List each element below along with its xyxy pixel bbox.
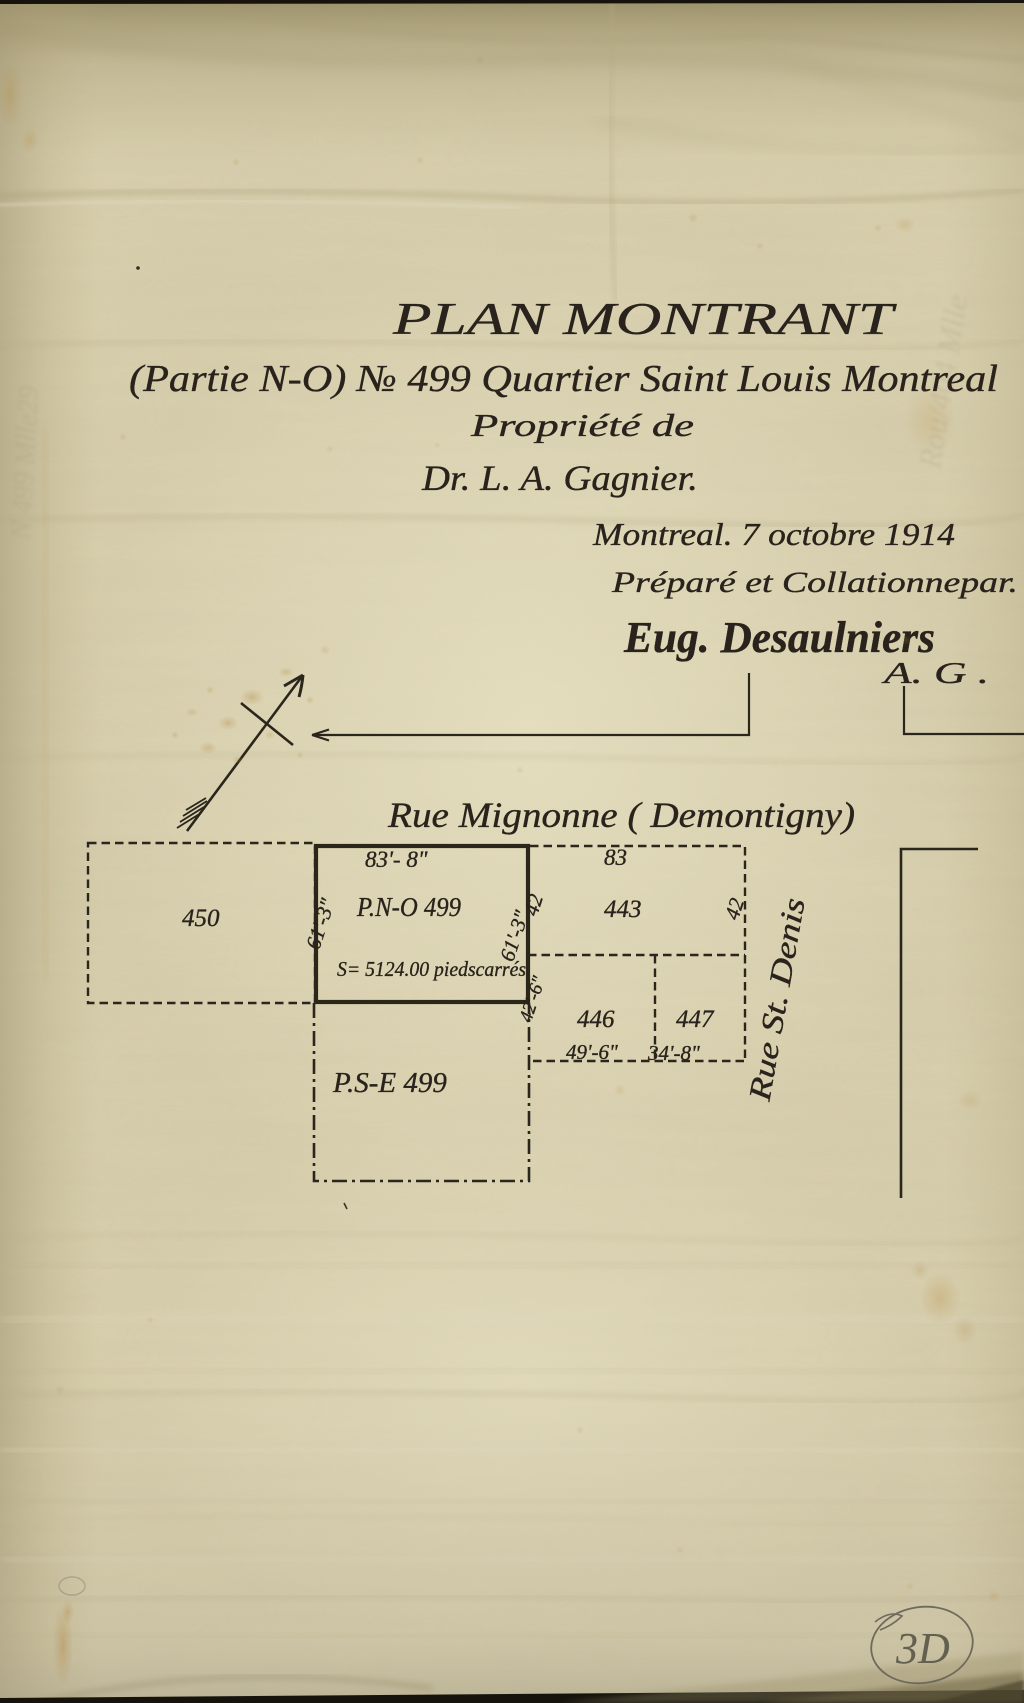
svg-text:450: 450 <box>182 905 220 932</box>
svg-text:Propriété de: Propriété de <box>470 407 694 443</box>
svg-text:49'-6": 49'-6" <box>566 1040 618 1064</box>
svg-text:83'- 8": 83'- 8" <box>365 847 428 872</box>
svg-text:P.S-E 499: P.S-E 499 <box>332 1067 447 1099</box>
svg-text:A. G .: A. G . <box>881 655 989 690</box>
svg-text:(Partie N-O) № 499 Quartier S: (Partie N-O) № 499 Quartier Saint Louis … <box>129 358 998 400</box>
svg-text:S= 5124.00 piedscarrés: S= 5124.00 piedscarrés <box>337 957 526 981</box>
svg-text:34'-8": 34'-8" <box>647 1041 700 1065</box>
svg-text:443: 443 <box>604 896 642 923</box>
svg-text:Dr. L. A. Gagnier.: Dr. L. A. Gagnier. <box>421 458 698 498</box>
svg-text:83: 83 <box>604 845 627 870</box>
svg-text:3D: 3D <box>895 1624 950 1673</box>
svg-text:447: 447 <box>676 1006 715 1033</box>
svg-text:Rue Mignonne ( Demontigny): Rue Mignonne ( Demontigny) <box>387 795 855 835</box>
svg-text:Montreal. 7 octobre 1914: Montreal. 7 octobre 1914 <box>592 516 955 552</box>
svg-text:P.N-O 499: P.N-O 499 <box>356 892 461 922</box>
svg-text:PLAN MONTRANT: PLAN MONTRANT <box>392 293 898 344</box>
svg-text:Préparé et Collationnepar.: Préparé et Collationnepar. <box>611 566 1018 599</box>
svg-text:446: 446 <box>577 1006 615 1033</box>
